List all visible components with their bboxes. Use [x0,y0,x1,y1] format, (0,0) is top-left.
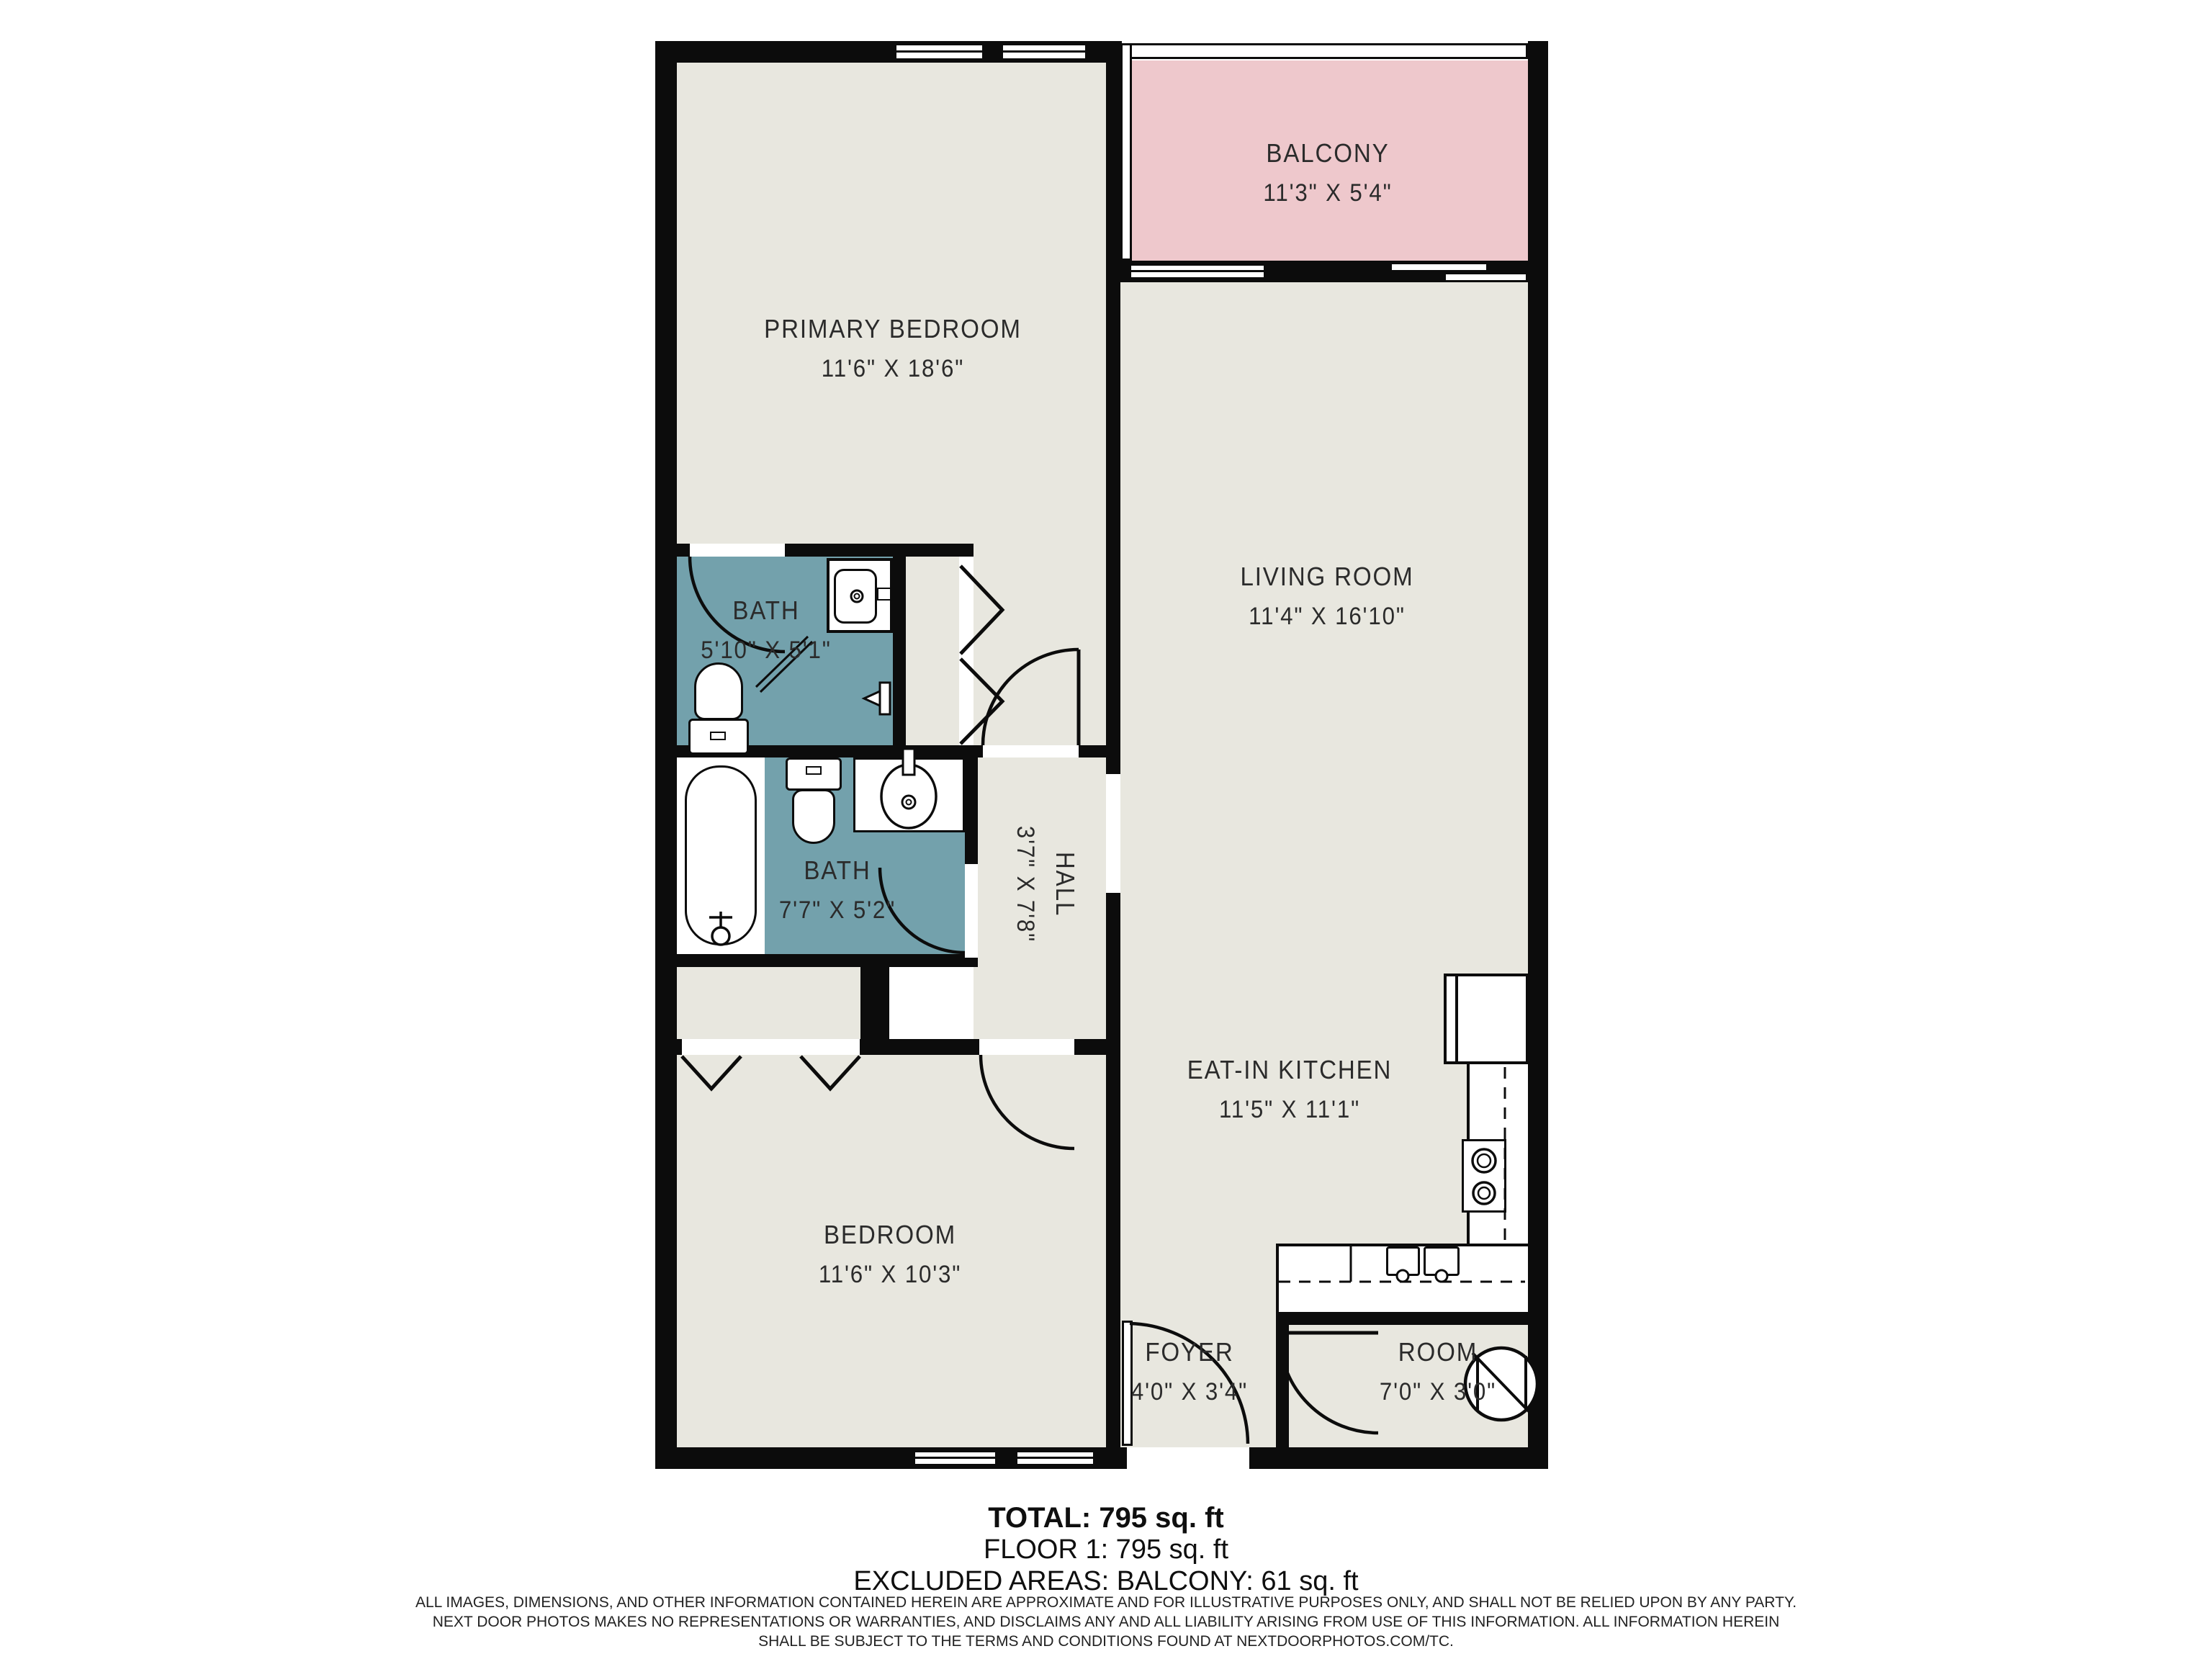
primary-closet-bifold-chevron-2 [961,659,1002,744]
storage-room-name: ROOM [1380,1338,1496,1367]
primary-bedroom-label: PRIMARY BEDROOM 11'6" X 18'6" [764,315,1022,382]
foyer-label: FOYER 4'0" X 3'4" [1131,1338,1248,1406]
kitchen-name: EAT-IN KITCHEN [1187,1056,1393,1084]
balcony-dims: 11'3" X 5'4" [1263,179,1392,207]
kitchen-sink-faucets-icon [1397,1270,1447,1282]
living-room-dims: 11'4" X 16'10" [1240,603,1413,630]
foyer-dims: 4'0" X 3'4" [1131,1378,1248,1406]
balcony-name: BALCONY [1263,139,1392,168]
bath1-name: BATH [701,596,831,625]
plan-symbols-layer [0,0,2212,1659]
disclaimer-line-3: SHALL BE SUBJECT TO THE TERMS AND CONDIT… [415,1632,1797,1651]
balcony-label: BALCONY 11'3" X 5'4" [1263,139,1392,207]
bedroom-dims: 11'6" X 10'3" [819,1261,961,1288]
foyer-name: FOYER [1131,1338,1248,1367]
bath1-dims: 5'10" X 5'1" [701,637,831,664]
bath2-dims: 7'7" X 5'2" [779,896,896,924]
disclaimer-text: ALL IMAGES, DIMENSIONS, AND OTHER INFORM… [415,1593,1797,1651]
bath1-label: BATH 5'10" X 5'1" [701,596,831,664]
primary-bedroom-dims: 11'6" X 18'6" [764,355,1022,382]
bath2-label: BATH 7'7" X 5'2" [779,856,896,924]
bedroom-name: BEDROOM [819,1220,961,1249]
storage-room-label: ROOM 7'0" X 3'0" [1380,1338,1496,1406]
hall-dims: 3'7" X 7'8" [1012,826,1039,943]
living-room-label: LIVING ROOM 11'4" X 16'10" [1240,562,1413,630]
living-room-name: LIVING ROOM [1240,562,1413,591]
bedroom-door-arc [981,1055,1074,1148]
shower-valve-icon [864,683,890,714]
hall-name: HALL [1051,826,1079,943]
storage-room-door-arc [1280,1334,1378,1433]
bedroom-closet-bifold-chevron-2 [801,1056,860,1089]
bedroom-label: BEDROOM 11'6" X 10'3" [819,1220,961,1288]
disclaimer-line-2: NEXT DOOR PHOTOS MAKES NO REPRESENTATION… [415,1612,1797,1632]
total-area-text: TOTAL: 795 sq. ft [853,1502,1358,1534]
tub-faucet-icon [709,912,732,945]
bedroom-closet-bifold-chevron-1 [682,1056,741,1089]
kitchen-dims: 11'5" X 11'1" [1187,1096,1393,1123]
disclaimer-line-1: ALL IMAGES, DIMENSIONS, AND OTHER INFORM… [415,1593,1797,1612]
bath1-sink-drain-icon [851,590,863,602]
floor-plan-page: BALCONY 11'3" X 5'4" PRIMARY BEDROOM 11'… [0,0,2212,1659]
bath2-name: BATH [779,856,896,885]
floor-area-text: FLOOR 1: 795 sq. ft [853,1534,1358,1565]
bath2-sink-icon [881,749,936,828]
hall-label: HALL 3'7" X 7'8" [1012,826,1079,943]
storage-room-dims: 7'0" X 3'0" [1380,1378,1496,1406]
primary-closet-bifold-chevron-1 [961,566,1002,654]
kitchen-label: EAT-IN KITCHEN 11'5" X 11'1" [1187,1056,1393,1123]
stove-burners-icon [1473,1149,1496,1204]
primary-bedroom-name: PRIMARY BEDROOM [764,315,1022,343]
area-summary: TOTAL: 795 sq. ft FLOOR 1: 795 sq. ft EX… [853,1502,1358,1597]
